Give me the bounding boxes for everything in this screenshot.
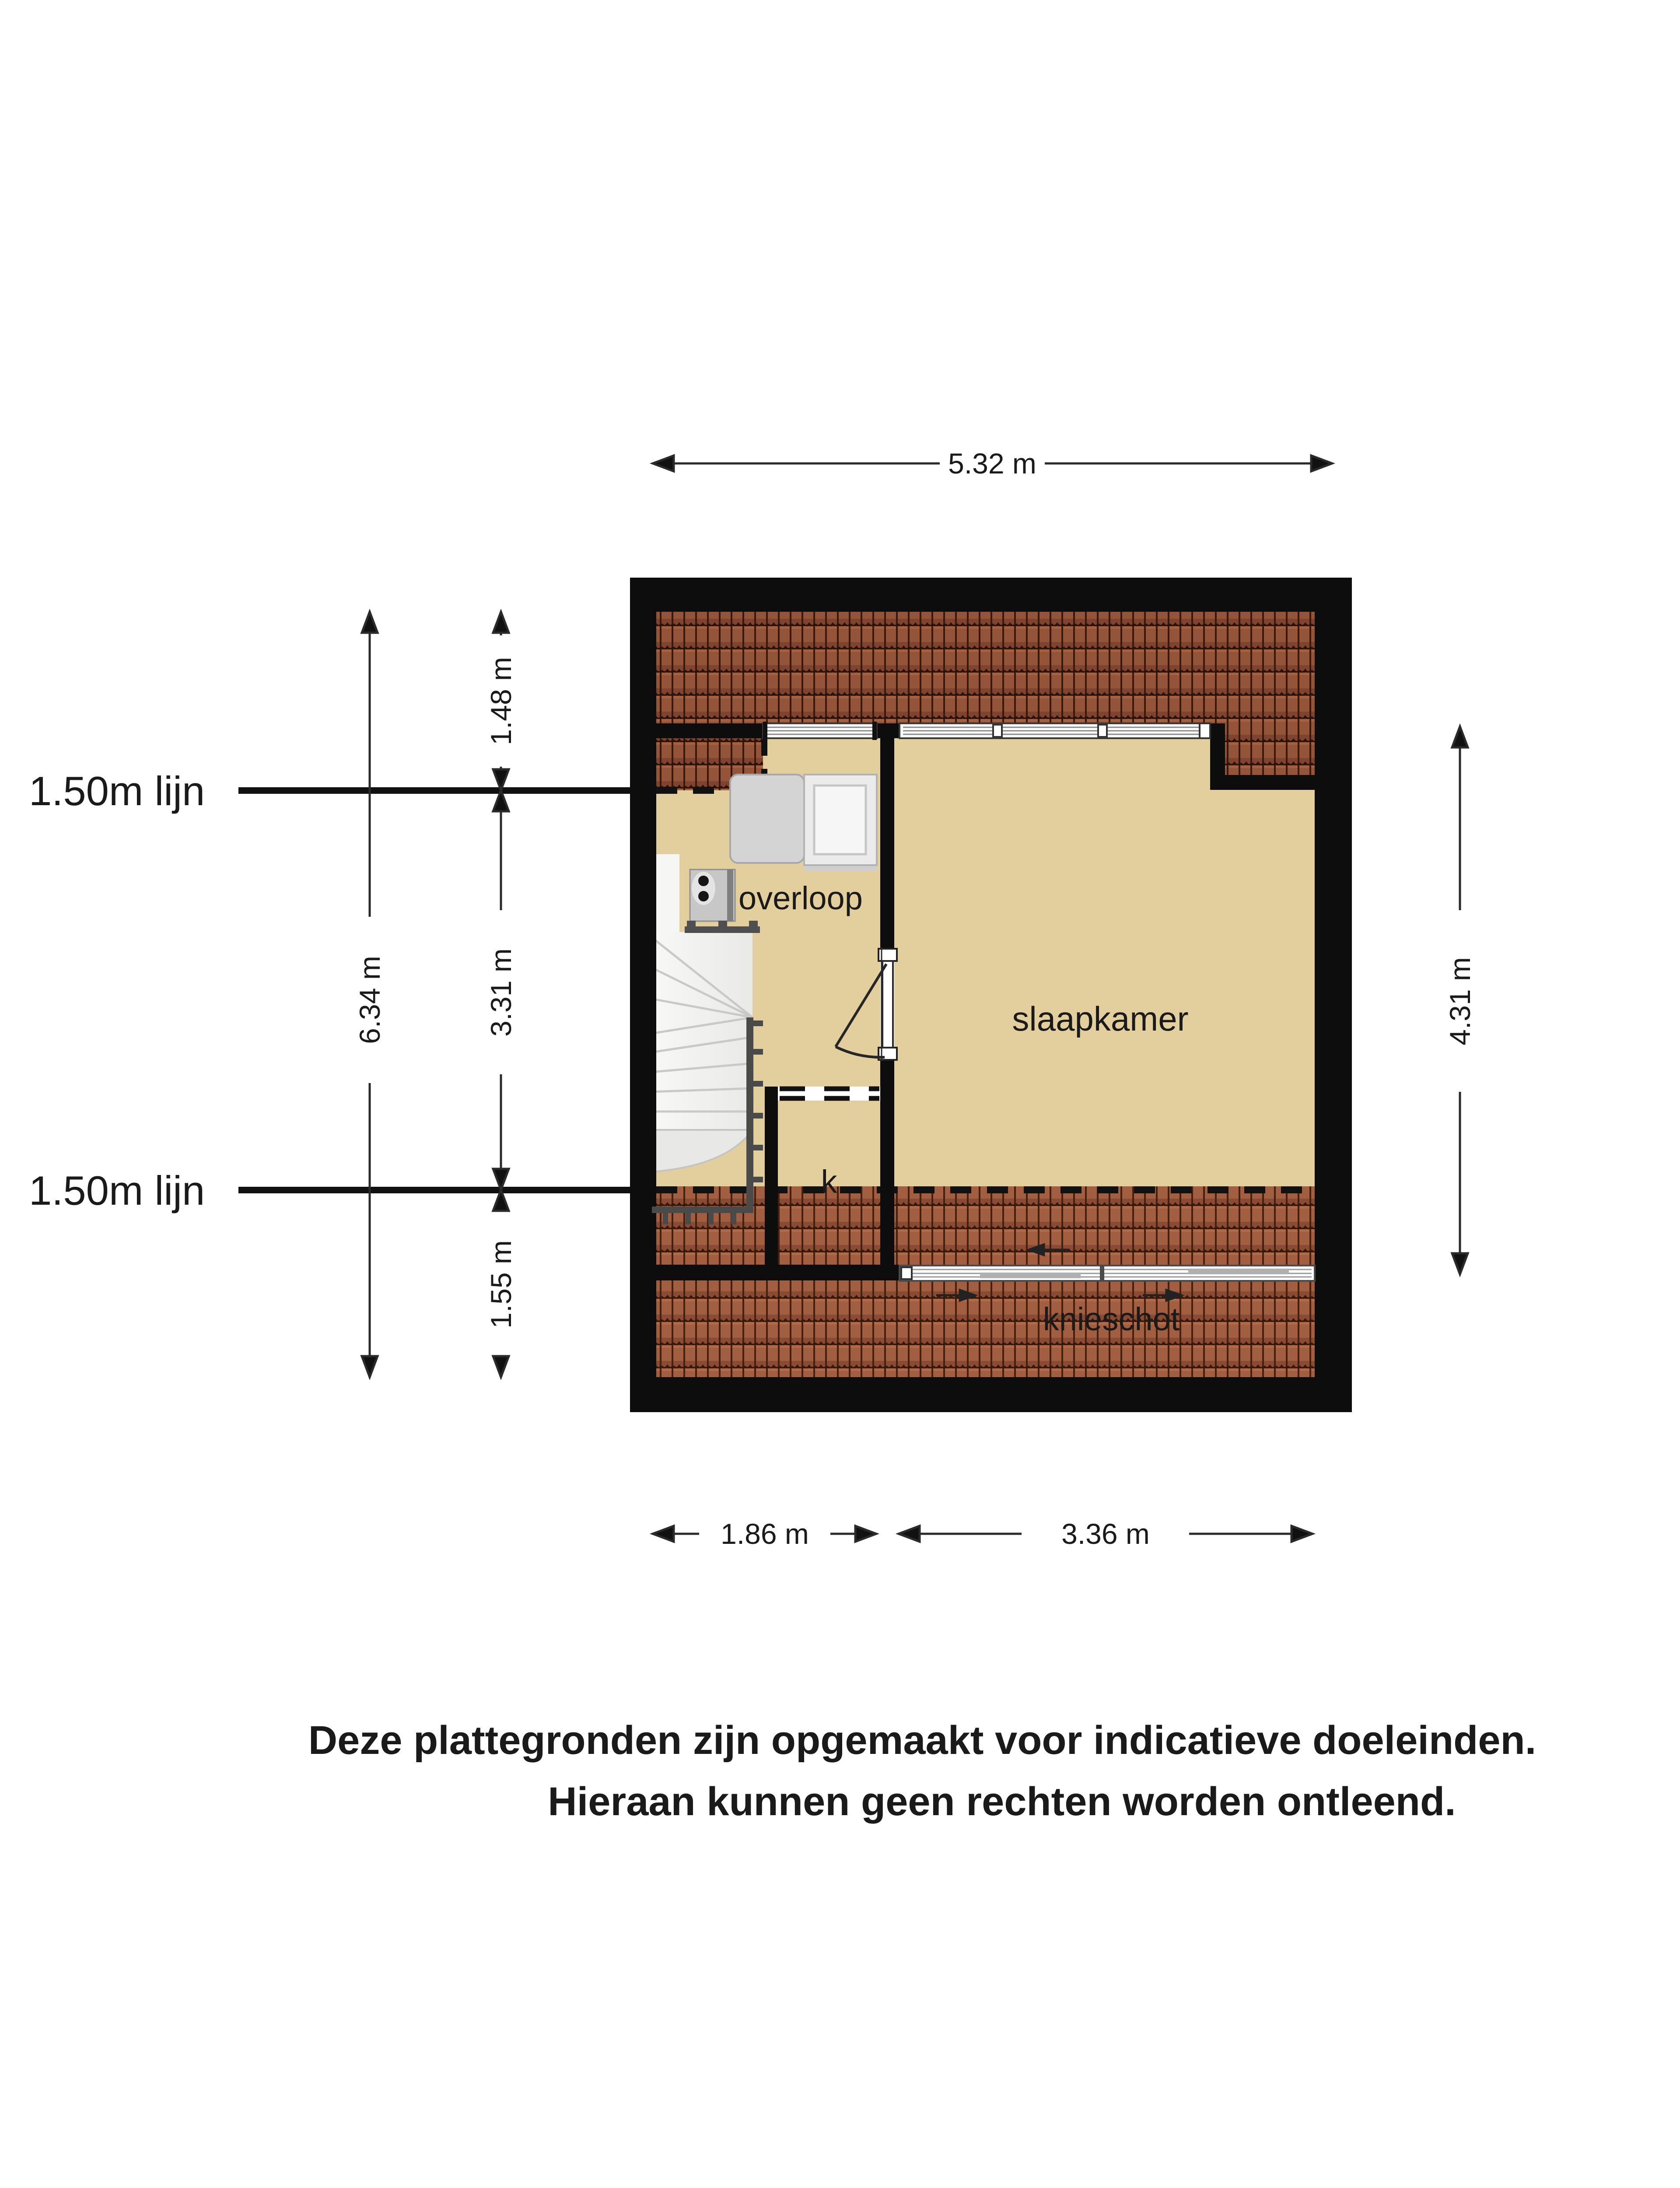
dimension-left-middle: 3.31 m (485, 948, 517, 1037)
window-end-cap (1200, 723, 1210, 738)
window-mullion (1098, 725, 1107, 737)
room-label-bedroom: slaapkamer (1012, 999, 1188, 1038)
arrow-up-icon (493, 612, 509, 633)
arrow-down-icon (493, 1169, 509, 1190)
arrow-left-icon (653, 456, 674, 471)
arrow-down-icon (493, 1356, 509, 1377)
arrow-down-icon (1452, 1253, 1468, 1274)
dimension-left-upper: 1.48 m (485, 657, 517, 745)
level-line-upper: 1.50m lijn (29, 768, 630, 814)
arrow-right-icon (1311, 456, 1332, 471)
level-line-upper-bar (238, 787, 630, 794)
wall-closet-left (765, 1087, 778, 1265)
wall-divider-head (877, 723, 899, 738)
arrow-right-icon (1291, 1526, 1312, 1542)
room-label-knee-wall: knieschot (1043, 1301, 1180, 1337)
strip-end-cap (901, 1267, 912, 1279)
wall-divider-lower (880, 1059, 894, 1265)
level-line-upper-label: 1.50m lijn (29, 768, 205, 814)
boiler-knob-bottom (698, 891, 709, 901)
strip-slider-left (980, 1273, 1081, 1278)
arrow-left-icon (899, 1526, 920, 1542)
dimension-left-total: 6.34 m (353, 956, 386, 1044)
arrow-down-icon (493, 769, 509, 790)
disclaimer-line-1: Deze plattegronden zijn opgemaakt voor i… (308, 1718, 1536, 1763)
closet-opening (778, 1087, 880, 1101)
wall-stub-top-left (656, 723, 763, 738)
level-line-lower-bar (238, 1187, 630, 1193)
window-mullion (993, 725, 1002, 737)
railing-vertical-bar (746, 1017, 753, 1206)
boiler-edge (727, 870, 733, 921)
dimension-bottom-left: 1.86 m (721, 1518, 809, 1550)
arrow-right-icon (855, 1526, 876, 1542)
floor-plan-page: overloop slaapkamer k knieschot 1.50m li… (0, 0, 1680, 2188)
wall-outer-top (630, 578, 1352, 612)
wall-inner-bottom (656, 1265, 899, 1280)
window-landing (763, 722, 877, 740)
room-label-landing: overloop (738, 880, 863, 916)
strip-slider-right (1188, 1269, 1289, 1274)
knee-wall-window-strip (899, 1266, 1315, 1281)
level-line-lower-label: 1.50m lijn (29, 1168, 205, 1213)
dimension-left-lower: 1.55 m (485, 1240, 517, 1329)
boiler-knob-top (698, 876, 709, 886)
floor-plan-drawing: overloop slaapkamer k knieschot 1.50m li… (0, 0, 1680, 2188)
arrow-left-icon (653, 1526, 674, 1542)
dimension-top: 5.32 m (948, 447, 1036, 480)
level-line-lower: 1.50m lijn (29, 1168, 630, 1213)
door-leaf-closed (882, 961, 893, 1048)
dimension-right: 4.31 m (1444, 957, 1476, 1045)
room-label-closet: k (821, 1164, 838, 1200)
railing-bottom-bar (652, 1206, 753, 1213)
wall-divider-upper (880, 738, 894, 950)
window-bedroom (899, 723, 1210, 738)
wall-notch-horizontal (1210, 775, 1315, 790)
windows (763, 722, 1210, 740)
arrow-up-icon (362, 612, 378, 633)
wall-outer-right (1315, 578, 1352, 1412)
disclaimer-line-2: Hieraan kunnen geen rechten worden ontle… (548, 1779, 1456, 1824)
roof-tiles-corner-notch (1225, 723, 1315, 775)
washing-machine-lid (814, 785, 866, 854)
strip-mullion (1100, 1266, 1104, 1281)
shower-tray-icon (730, 775, 804, 863)
wall-outer-bottom (630, 1377, 1352, 1412)
arrow-up-icon (1452, 726, 1468, 747)
washing-machine-base (804, 866, 877, 871)
dimension-bottom-right: 3.36 m (1061, 1518, 1150, 1550)
arrow-down-icon (362, 1356, 378, 1377)
wall-outer-left (630, 578, 656, 1412)
roof-tiles-top-band (656, 612, 1315, 723)
